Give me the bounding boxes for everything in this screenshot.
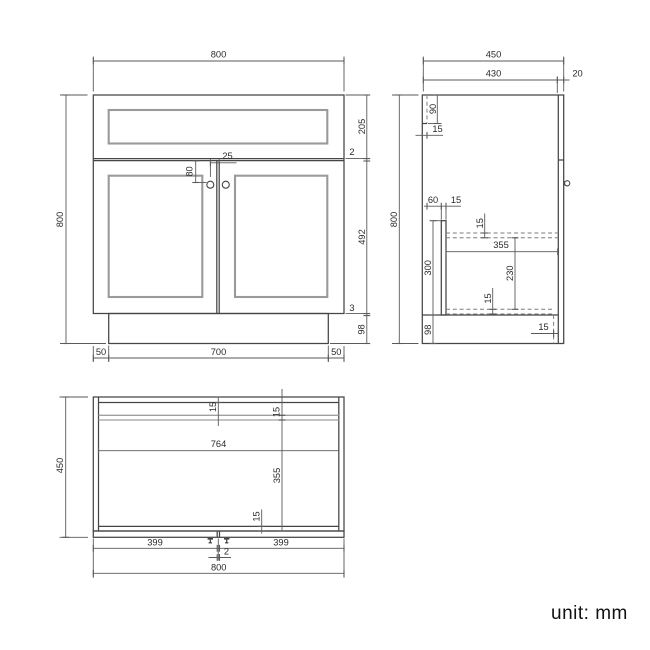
dim-label: 205 [357, 119, 367, 135]
plan-view: 4507641515355153993992800 [55, 389, 344, 578]
dim-label: 300 [423, 260, 433, 276]
dim-label: 800 [389, 212, 399, 228]
dim-label: 230 [505, 265, 515, 281]
dim-label: 700 [211, 347, 227, 357]
dim-label: 15 [272, 407, 282, 417]
dim-label: 800 [55, 212, 65, 228]
dim-label: 90 [428, 104, 438, 114]
dim-label: 60 [428, 195, 438, 205]
dim-label: 15 [483, 293, 493, 303]
plinth [109, 314, 329, 344]
dim-label: 25 [222, 151, 232, 161]
left-door-panel [109, 176, 203, 297]
right-door-panel [235, 176, 327, 297]
dim-label: 3 [349, 303, 354, 313]
dim-label: 355 [272, 468, 282, 484]
dim-label: 800 [211, 562, 227, 572]
dim-label: 399 [273, 537, 289, 547]
dim-label: 50 [331, 347, 341, 357]
right-door-knob [222, 181, 229, 188]
dim-label: 355 [493, 240, 509, 250]
dim-label: 492 [357, 229, 367, 245]
drawer-front-panel [109, 110, 328, 144]
dim-label: 15 [451, 195, 461, 205]
dim-label: 15 [432, 124, 442, 134]
dim-label: 15 [538, 322, 548, 332]
front-elevation-view: 800800205249239850700508025 [55, 50, 370, 363]
unit-label: unit: mm [551, 603, 628, 625]
dim-label: 450 [55, 458, 65, 474]
doors-front [93, 531, 344, 537]
dim-label: 2 [349, 147, 354, 157]
dim-label: 2 [224, 547, 229, 557]
dim-label: 399 [147, 537, 163, 547]
dim-label: 15 [208, 402, 218, 412]
side-support-strip [441, 221, 446, 315]
dim-label: 450 [486, 50, 502, 60]
dim-label: 430 [486, 69, 502, 79]
left-door-knob [207, 181, 214, 188]
dim-label: 764 [211, 439, 227, 449]
dim-label: 80 [185, 166, 195, 176]
dim-label: 800 [211, 50, 227, 60]
dim-label: 50 [96, 347, 106, 357]
dim-label: 98 [357, 324, 367, 334]
side-knob [565, 181, 570, 186]
technical-drawing: 8008002052492398507005080254504302080090… [0, 0, 650, 650]
dim-label: 20 [572, 69, 582, 79]
side-section-view: 450430208009015601530015355230159815 [389, 50, 583, 344]
dim-label: 15 [252, 511, 262, 521]
dim-label: 98 [423, 325, 433, 335]
dim-label: 15 [475, 218, 485, 228]
